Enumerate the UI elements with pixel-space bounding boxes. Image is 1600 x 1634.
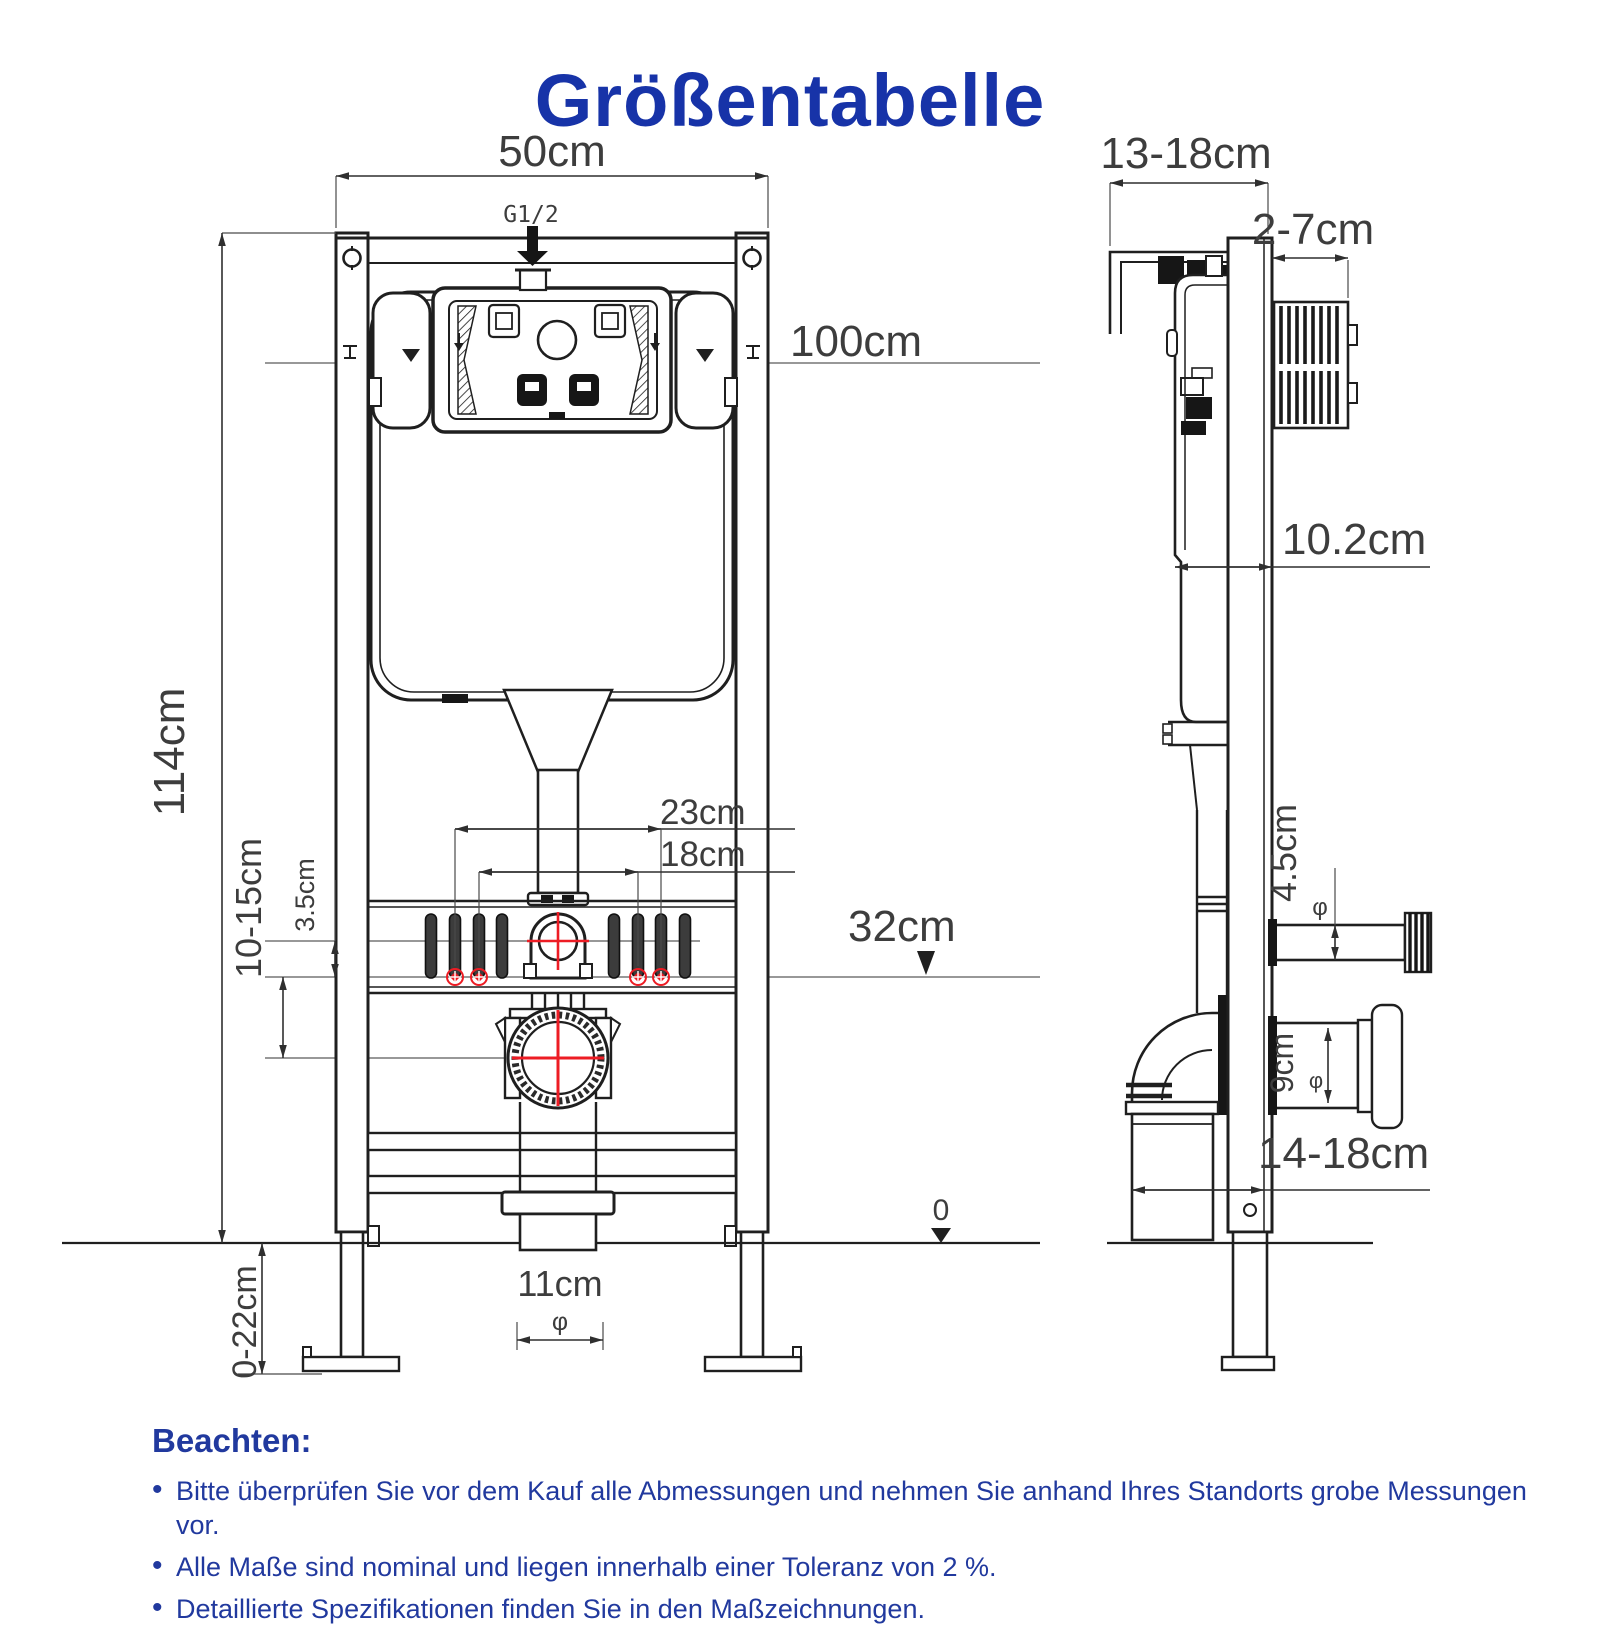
note-item: Alle Maße sind nominal und liegen innerh… [152,1550,1552,1584]
diameter-symbol-drain: φ [552,1308,568,1336]
diameter-symbol-inlet: φ [1312,894,1328,921]
tank-funnel [504,690,612,772]
label-inlet-thread: G1/2 [503,202,558,228]
mounting-crossplate [368,901,736,993]
label-anchor-18: 18cm [660,835,746,874]
label-anchor-23: 23cm [660,793,746,832]
size-chart-technical-drawing: 50cm G1/2 100cm 114cm 23cm 18cm 3.5cm 10… [0,0,1600,1410]
label-plate-recess: 2-7cm [1252,205,1374,254]
flush-pipe [528,770,588,905]
right-foot [705,1357,801,1371]
side-cistern [1163,256,1228,810]
label-cistern-depth: 10.2cm [1282,515,1426,564]
note-item: Bitte überprüfen Sie vor dem Kauf alle A… [152,1474,1552,1542]
label-anchor-offset: 3.5cm [290,858,320,932]
bellows [1274,302,1357,428]
notes-list: Bitte überprüfen Sie vor dem Kauf alle A… [152,1474,1552,1626]
outlet-port [524,912,592,978]
label-outlet-range: 10-15cm [228,838,269,978]
label-flush-plate-height: 100cm [790,317,922,366]
right-rail [736,233,768,1232]
label-drain-diameter: 11cm [517,1263,602,1304]
elbow-outer [1132,1013,1218,1093]
side-view: 13-18cm 2-7cm 10.2cm 4.5cm φ 9cm φ 14-18… [1100,129,1431,1370]
lower-bar-1 [368,1133,736,1150]
drain-flange-cap [1372,1005,1402,1128]
floor-zero-mark [931,1228,951,1243]
drain-collar [502,1192,614,1214]
lower-bar-2 [368,1176,736,1193]
note-item: Detaillierte Spezifikationen finden Sie … [152,1592,1552,1626]
left-ear [373,293,430,428]
left-rail [336,233,368,1232]
bowl-outlet-stub [1132,1114,1213,1240]
side-foot [1222,1357,1274,1370]
label-drainpipe-diameter: 9cm [1264,1033,1300,1093]
elbow-inner [1162,1050,1212,1100]
label-floor-zero: 0 [933,1194,950,1227]
water-inlet [515,226,551,290]
diameter-symbol-drainpipe: φ [1309,1068,1323,1093]
front-view: 50cm G1/2 100cm 114cm 23cm 18cm 3.5cm 10… [62,127,1040,1379]
left-foot [303,1357,399,1371]
side-inlet-pipe [1268,913,1431,972]
inspection-box [369,288,737,432]
side-flush-pipe [1126,810,1228,1240]
label-outlet-height: 32cm [848,902,956,951]
label-frame-width: 50cm [498,127,606,176]
notes-section: Beachten: Bitte überprüfen Sie vor dem K… [152,1422,1552,1634]
drain-pipe-stub [520,1214,596,1250]
inlet-arrow-shaft [527,226,538,252]
label-leg-range: 0-22cm [226,1265,264,1378]
notes-heading: Beachten: [152,1422,1552,1460]
label-frame-depth: 13-18cm [1100,129,1271,178]
label-inlet-diameter: 4.5cm [1263,804,1304,902]
outlet-height-mark [917,951,935,975]
side-inlet-stub [1206,256,1222,276]
label-outlet-depth: 14-18cm [1258,1129,1429,1178]
drain-assembly [496,993,620,1250]
label-frame-height: 114cm [145,688,194,817]
